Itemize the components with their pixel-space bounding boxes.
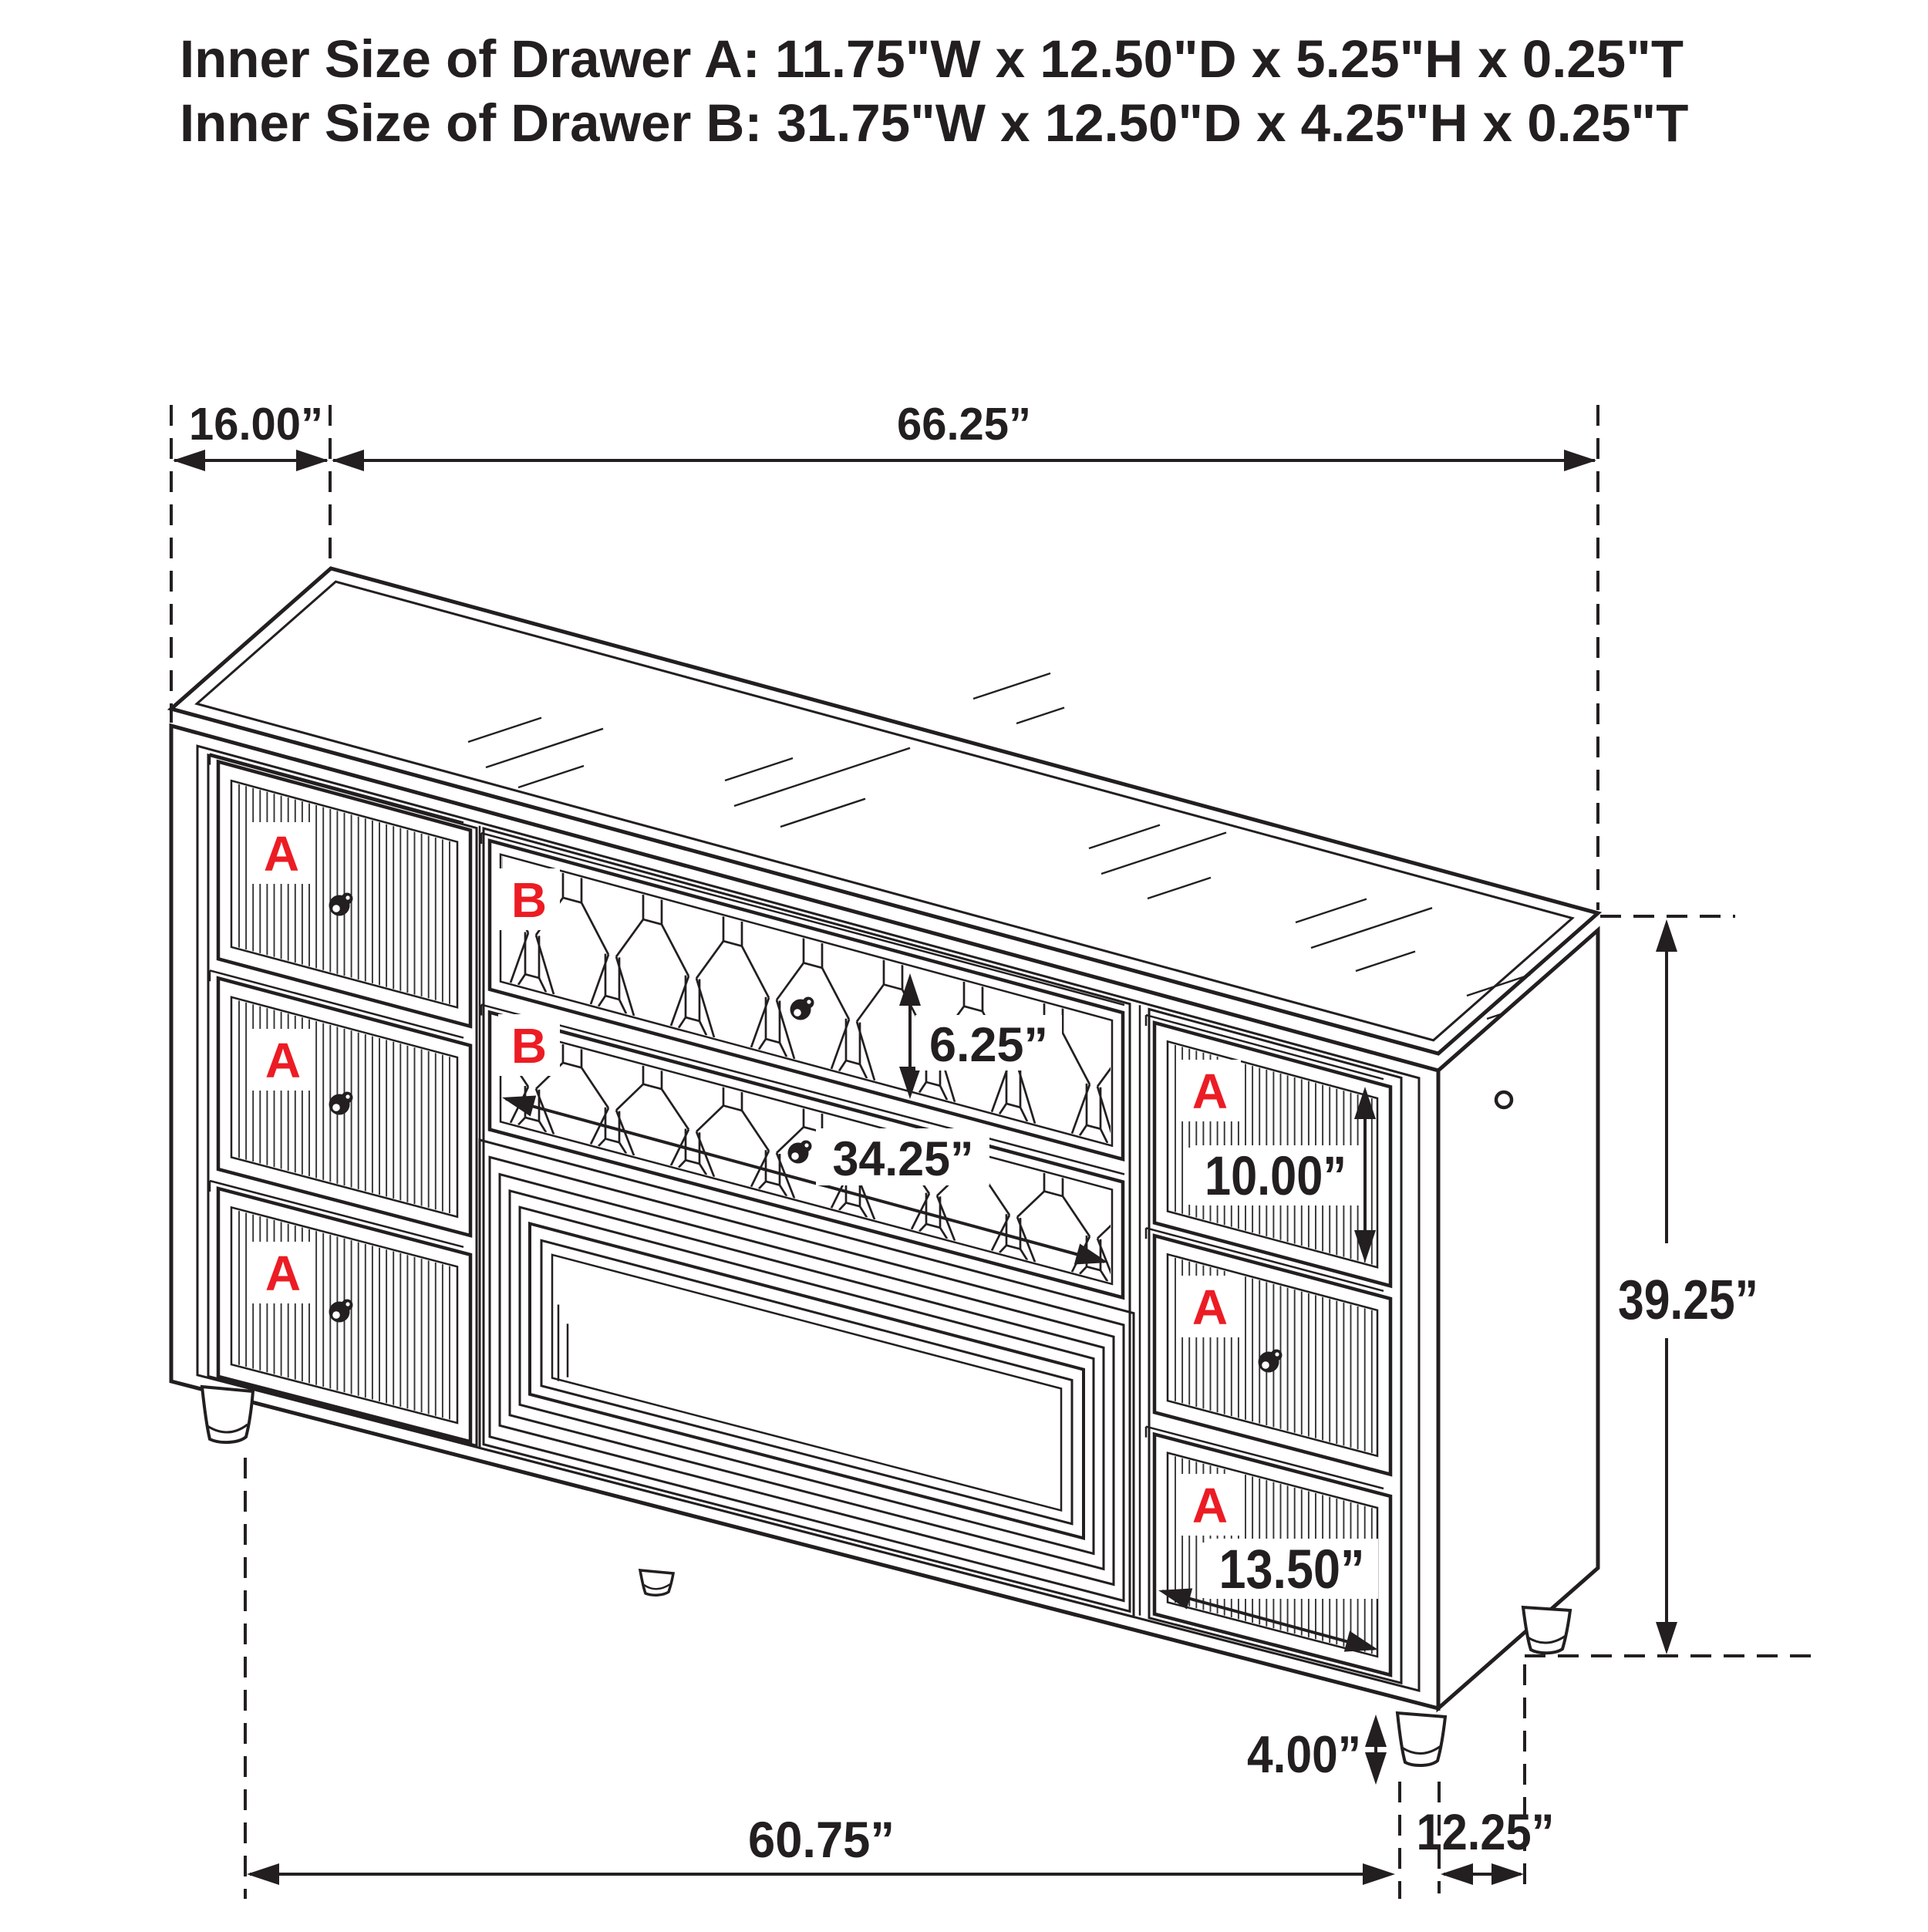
svg-text:A: A	[1192, 1478, 1228, 1533]
svg-text:A: A	[1192, 1280, 1228, 1335]
svg-text:34.25”: 34.25”	[833, 1132, 974, 1186]
svg-text:16.00”: 16.00”	[189, 399, 323, 450]
svg-text:6.25”: 6.25”	[929, 1018, 1048, 1072]
svg-text:A: A	[1192, 1064, 1228, 1119]
svg-text:66.25”: 66.25”	[897, 399, 1031, 450]
svg-text:Inner Size of Drawer A: 11.75": Inner Size of Drawer A: 11.75"W x 12.50"…	[180, 29, 1684, 89]
svg-text:10.00”: 10.00”	[1205, 1146, 1347, 1207]
svg-text:B: B	[511, 872, 547, 928]
svg-text:4.00”: 4.00”	[1247, 1725, 1361, 1784]
svg-text:A: A	[264, 826, 299, 882]
svg-text:A: A	[265, 1246, 301, 1301]
svg-text:A: A	[265, 1033, 301, 1088]
svg-text:B: B	[511, 1018, 547, 1074]
svg-text:39.25”: 39.25”	[1618, 1269, 1758, 1331]
svg-text:Inner Size of Drawer B: 31.75": Inner Size of Drawer B: 31.75"W x 12.50"…	[180, 93, 1688, 153]
svg-text:13.50”: 13.50”	[1219, 1539, 1365, 1600]
svg-text:12.25”: 12.25”	[1417, 1803, 1555, 1860]
svg-text:60.75”: 60.75”	[748, 1811, 895, 1868]
